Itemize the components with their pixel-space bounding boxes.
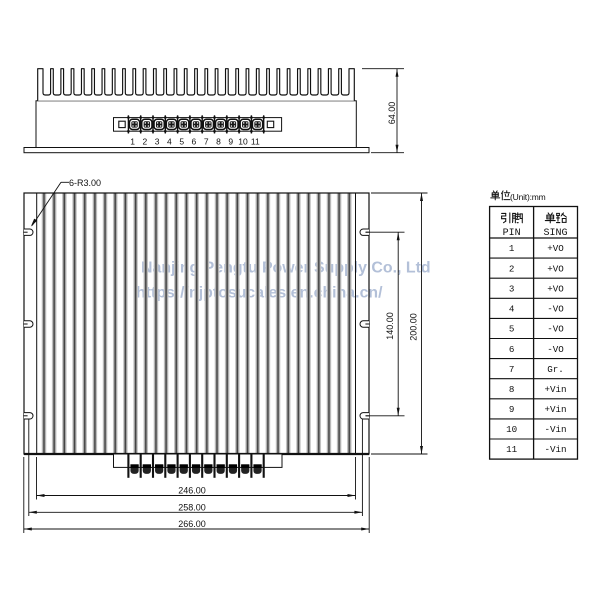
svg-text:+VO: +VO xyxy=(547,283,564,294)
svg-text:9: 9 xyxy=(509,404,515,415)
svg-text:(Unit):mm: (Unit):mm xyxy=(510,192,546,202)
svg-text:2: 2 xyxy=(143,136,148,146)
svg-text:+VO: +VO xyxy=(547,243,564,254)
svg-text:9: 9 xyxy=(228,136,233,146)
svg-text:64.00: 64.00 xyxy=(387,102,397,125)
svg-text:-Vin: -Vin xyxy=(544,444,566,455)
svg-text:6: 6 xyxy=(192,136,197,146)
svg-text:266.00: 266.00 xyxy=(178,519,206,529)
svg-text:PIN: PIN xyxy=(503,228,521,239)
svg-text:7: 7 xyxy=(204,136,209,146)
svg-text:246.00: 246.00 xyxy=(178,486,206,496)
svg-text:+Vin: +Vin xyxy=(544,404,566,415)
svg-text:+Vin: +Vin xyxy=(544,384,566,395)
svg-text:6-R3.00: 6-R3.00 xyxy=(69,178,101,188)
svg-text:11: 11 xyxy=(506,444,518,455)
svg-text:11: 11 xyxy=(251,136,260,146)
svg-text:5: 5 xyxy=(179,136,184,146)
svg-text:8: 8 xyxy=(216,136,221,146)
svg-text:200.00: 200.00 xyxy=(409,313,419,341)
svg-text:4: 4 xyxy=(509,304,515,315)
svg-text:+VO: +VO xyxy=(547,263,564,274)
svg-text:8: 8 xyxy=(509,384,515,395)
svg-text:-VO: -VO xyxy=(547,344,564,355)
svg-text:4: 4 xyxy=(167,136,172,146)
svg-text:3: 3 xyxy=(509,283,515,294)
svg-text:2: 2 xyxy=(509,263,515,274)
svg-text:-VO: -VO xyxy=(547,324,564,335)
svg-text:1: 1 xyxy=(509,243,515,254)
svg-text:5: 5 xyxy=(509,324,515,335)
svg-text:140.00: 140.00 xyxy=(385,312,395,340)
svg-text:10: 10 xyxy=(238,136,248,146)
svg-text:1: 1 xyxy=(130,136,135,146)
svg-text:258.00: 258.00 xyxy=(178,502,206,512)
svg-text:-Vin: -Vin xyxy=(544,424,566,435)
svg-text:Gr.: Gr. xyxy=(547,364,564,375)
svg-text:10: 10 xyxy=(506,424,517,435)
svg-text:3: 3 xyxy=(155,136,160,146)
svg-text:6: 6 xyxy=(509,344,515,355)
svg-text:7: 7 xyxy=(509,364,515,375)
svg-text:-VO: -VO xyxy=(547,304,564,315)
svg-text:SING: SING xyxy=(543,228,567,239)
